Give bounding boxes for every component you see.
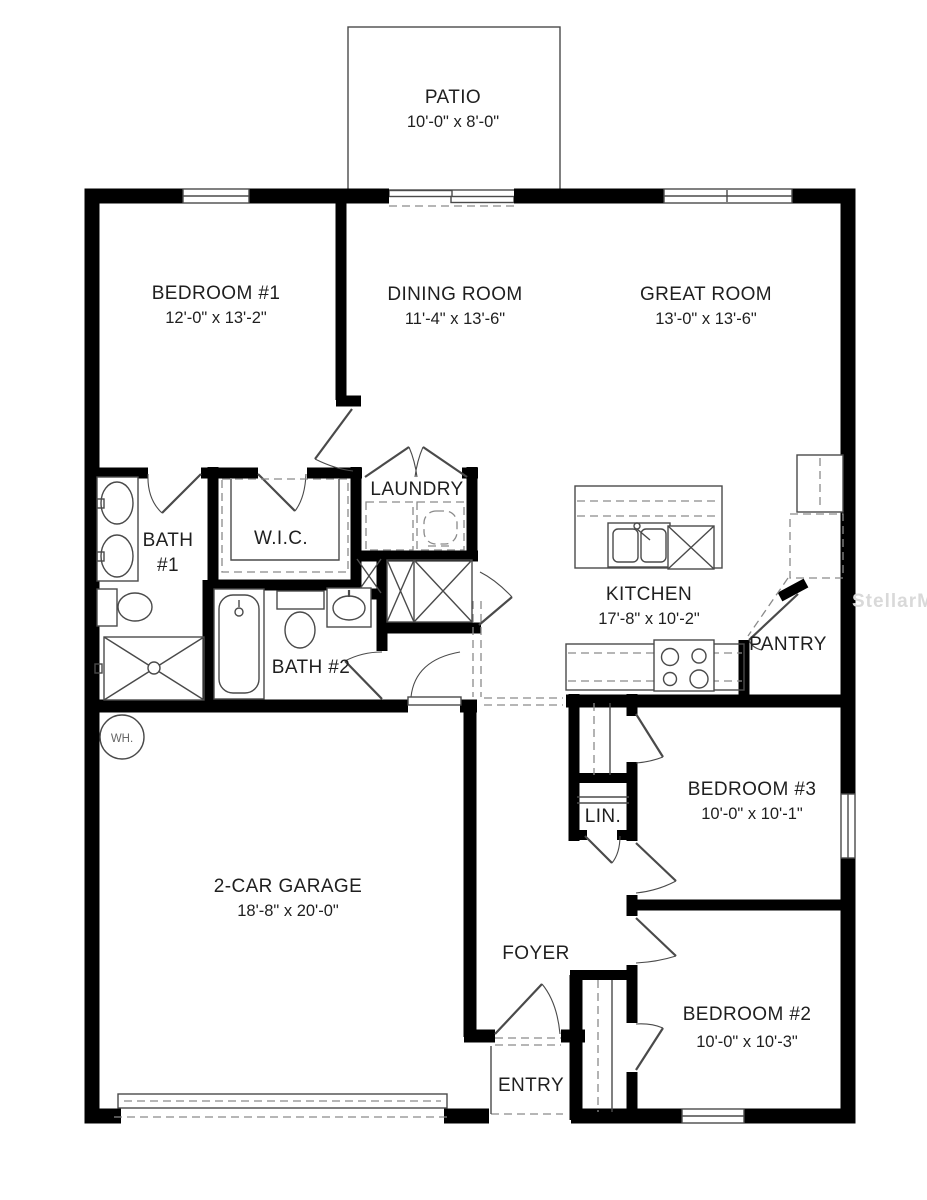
- entry-label: ENTRY: [498, 1075, 564, 1096]
- bedroom1-dims: 12'-0" x 13'-2": [165, 309, 267, 327]
- great-dims: 13'-0" x 13'-6": [655, 310, 757, 328]
- bath1-fixtures: [95, 477, 204, 700]
- garage-dims: 18'-8" x 20'-0": [237, 902, 339, 920]
- patio-dims: 10'-0" x 8'-0": [407, 113, 499, 131]
- closet-interiors: [577, 703, 629, 1112]
- water-heater: WH.: [100, 715, 144, 759]
- bedroom3-dims: 10'-0" x 10'-1": [701, 805, 803, 823]
- wic-shelving: [222, 479, 348, 572]
- kitchen-fixtures: [566, 455, 843, 691]
- kitchen-label: KITCHEN: [606, 584, 692, 605]
- bath2-label: BATH #2: [272, 657, 350, 678]
- dining-dims: 11'-4" x 13'-6": [405, 310, 505, 328]
- wic-label: W.I.C.: [254, 528, 308, 549]
- pantry-label: PANTRY: [749, 634, 827, 655]
- laundry-appliances: [366, 502, 464, 550]
- great-label: GREAT ROOM: [640, 284, 772, 305]
- interior-walls: [85, 196, 848, 1120]
- bedroom2-dims: 10'-0" x 10'-3": [696, 1033, 798, 1051]
- bedroom3-label: BEDROOM #3: [688, 779, 817, 800]
- bath2-fixtures: [214, 588, 371, 699]
- foyer-label: FOYER: [502, 943, 569, 964]
- kitchen-dims: 17'-8" x 10'-2": [598, 610, 700, 628]
- linen-label: LIN.: [585, 806, 621, 827]
- laundry-label: LAUNDRY: [370, 479, 463, 500]
- bath1-number: #1: [157, 555, 179, 576]
- dining-label: DINING ROOM: [387, 284, 522, 305]
- watermark: StellarMLS: [852, 591, 927, 612]
- floor-plan: WH. PATIO 10'-0" x 8'-0" BEDROOM #1 12'-…: [0, 0, 927, 1200]
- patio-label: PATIO: [425, 87, 481, 108]
- bath1-label: BATH: [143, 530, 194, 551]
- floor-plan-page: WH. PATIO 10'-0" x 8'-0" BEDROOM #1 12'-…: [0, 0, 927, 1200]
- windows: [183, 189, 855, 1123]
- water-heater-label: WH.: [111, 733, 133, 745]
- garage-label: 2-CAR GARAGE: [214, 876, 362, 897]
- bedroom2-label: BEDROOM #2: [683, 1004, 812, 1025]
- garage-door: [114, 1094, 451, 1117]
- bedroom1-label: BEDROOM #1: [152, 283, 281, 304]
